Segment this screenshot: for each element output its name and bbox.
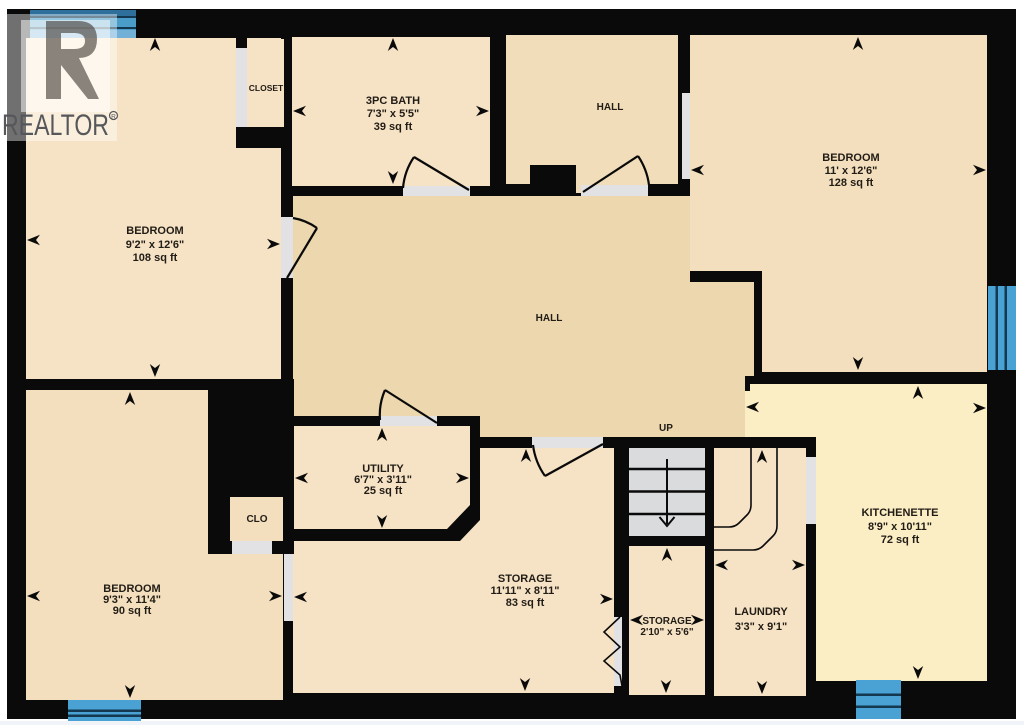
- svg-text:BEDROOM: BEDROOM: [822, 152, 879, 164]
- svg-text:KITCHENETTE: KITCHENETTE: [862, 507, 939, 519]
- svg-text:HALL: HALL: [536, 313, 563, 324]
- svg-text:9'2" x 12'6": 9'2" x 12'6": [126, 239, 184, 251]
- svg-text:11' x 12'6": 11' x 12'6": [825, 165, 878, 177]
- svg-text:CLOSET: CLOSET: [249, 83, 284, 93]
- svg-text:3'3" x 9'1": 3'3" x 9'1": [735, 621, 787, 633]
- svg-text:72 sq ft: 72 sq ft: [881, 534, 920, 546]
- svg-text:11'11" x 8'11": 11'11" x 8'11": [491, 585, 560, 597]
- svg-text:R: R: [111, 113, 116, 120]
- svg-text:STORAGE: STORAGE: [642, 616, 692, 627]
- svg-text:83 sq ft: 83 sq ft: [506, 597, 545, 609]
- svg-text:8'9" x 10'11": 8'9" x 10'11": [868, 521, 932, 533]
- svg-text:CLO: CLO: [246, 514, 267, 525]
- svg-text:LAUNDRY: LAUNDRY: [734, 606, 788, 618]
- svg-text:2'10" x 5'6": 2'10" x 5'6": [640, 627, 693, 638]
- svg-text:108 sq ft: 108 sq ft: [133, 252, 178, 264]
- svg-text:128 sq ft: 128 sq ft: [829, 177, 874, 189]
- svg-text:39 sq ft: 39 sq ft: [374, 121, 413, 133]
- svg-text:BEDROOM: BEDROOM: [126, 225, 183, 237]
- svg-text:90 sq ft: 90 sq ft: [113, 605, 152, 617]
- svg-text:25 sq ft: 25 sq ft: [364, 485, 403, 497]
- svg-text:7'3" x 5'5": 7'3" x 5'5": [367, 108, 419, 120]
- svg-text:3PC BATH: 3PC BATH: [366, 95, 420, 107]
- svg-text:UP: UP: [659, 423, 673, 434]
- svg-text:HALL: HALL: [597, 102, 624, 113]
- svg-text:REALTOR: REALTOR: [2, 109, 109, 142]
- svg-text:STORAGE: STORAGE: [498, 573, 552, 585]
